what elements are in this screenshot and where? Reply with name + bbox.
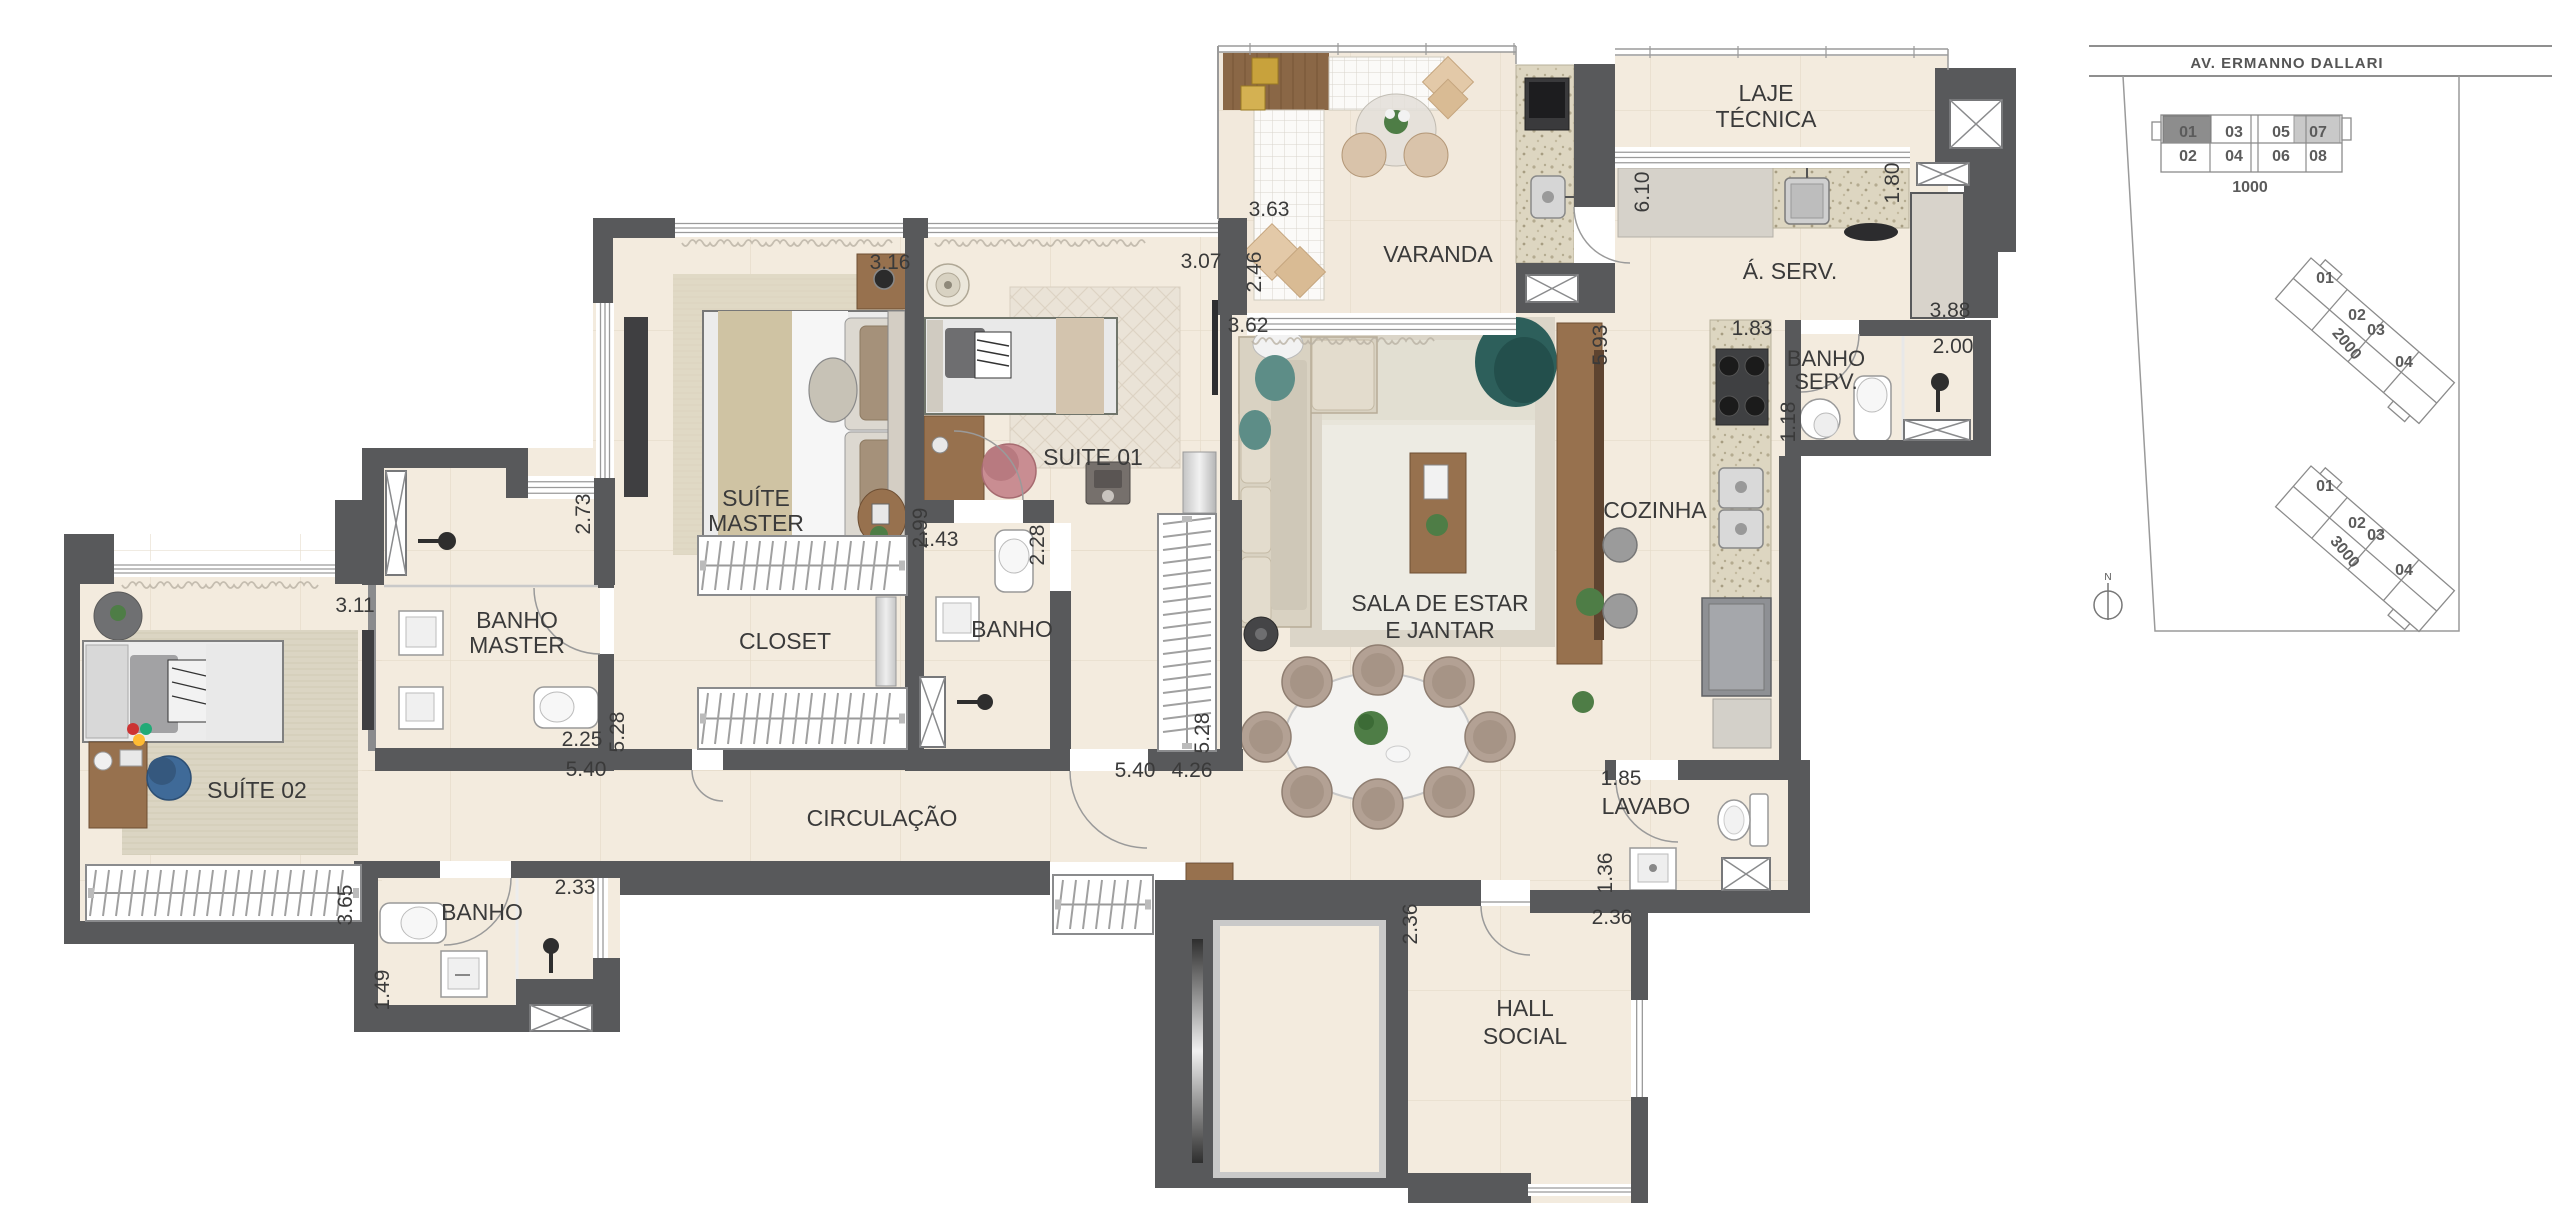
svg-text:MASTER: MASTER [469, 632, 565, 658]
svg-text:BANHO: BANHO [1787, 346, 1865, 371]
svg-text:2.36: 2.36 [1399, 904, 1422, 945]
svg-text:04: 04 [2225, 148, 2243, 165]
svg-text:3.16: 3.16 [870, 251, 911, 274]
svg-text:SUITE 01: SUITE 01 [1043, 444, 1143, 470]
svg-text:TÉCNICA: TÉCNICA [1716, 106, 1818, 132]
svg-text:4.26: 4.26 [1172, 759, 1213, 782]
svg-text:LAJE: LAJE [1739, 80, 1794, 106]
svg-text:HALL: HALL [1496, 995, 1554, 1021]
svg-text:LAVABO: LAVABO [1602, 793, 1691, 819]
svg-text:3.65: 3.65 [334, 885, 357, 926]
svg-text:3.62: 3.62 [1228, 314, 1269, 337]
svg-text:06: 06 [2272, 148, 2290, 165]
svg-text:2.00: 2.00 [1933, 335, 1974, 358]
svg-text:05: 05 [2272, 124, 2290, 141]
svg-text:N: N [2104, 572, 2111, 583]
svg-text:6.10: 6.10 [1631, 172, 1654, 213]
svg-text:2.28: 2.28 [1026, 525, 1049, 566]
svg-text:5.28: 5.28 [1191, 713, 1214, 754]
svg-text:07: 07 [2309, 124, 2327, 141]
svg-text:3.11: 3.11 [335, 594, 374, 617]
svg-text:Á. SERV.: Á. SERV. [1743, 258, 1838, 284]
svg-text:2.73: 2.73 [572, 494, 595, 535]
svg-text:SUÍTE 02: SUÍTE 02 [207, 777, 307, 803]
svg-text:01: 01 [2179, 124, 2197, 141]
svg-text:03: 03 [2367, 527, 2385, 544]
svg-text:BANHO: BANHO [971, 616, 1053, 642]
svg-text:CLOSET: CLOSET [739, 628, 831, 654]
svg-text:SUÍTE: SUÍTE [722, 485, 790, 511]
svg-text:SOCIAL: SOCIAL [1483, 1023, 1568, 1049]
svg-text:SALA DE ESTAR: SALA DE ESTAR [1351, 590, 1528, 616]
svg-text:5.93: 5.93 [1589, 325, 1612, 366]
svg-text:04: 04 [2395, 562, 2413, 579]
svg-text:2.46: 2.46 [1243, 252, 1266, 293]
svg-text:3.07: 3.07 [1181, 250, 1222, 273]
svg-text:AV. ERMANNO DALLARI: AV. ERMANNO DALLARI [2190, 55, 2383, 72]
svg-text:1.83: 1.83 [1732, 317, 1773, 340]
svg-text:3.88: 3.88 [1930, 299, 1971, 322]
svg-text:1000: 1000 [2232, 179, 2268, 196]
svg-text:2.33: 2.33 [555, 876, 596, 899]
svg-text:COZINHA: COZINHA [1603, 497, 1707, 523]
svg-text:5.40: 5.40 [1115, 759, 1156, 782]
svg-text:CIRCULAÇÃO: CIRCULAÇÃO [807, 805, 958, 831]
svg-text:MASTER: MASTER [708, 510, 804, 536]
svg-text:BANHO: BANHO [476, 607, 558, 633]
svg-text:5.28: 5.28 [606, 712, 629, 753]
svg-text:E JANTAR: E JANTAR [1385, 617, 1494, 643]
svg-text:1.36: 1.36 [1594, 853, 1617, 894]
svg-text:03: 03 [2367, 322, 2385, 339]
svg-text:1.80: 1.80 [1881, 163, 1904, 204]
svg-text:1.85: 1.85 [1601, 767, 1642, 790]
svg-text:BANHO: BANHO [441, 899, 523, 925]
svg-text:01: 01 [2316, 270, 2334, 287]
svg-text:03: 03 [2225, 124, 2243, 141]
svg-text:VARANDA: VARANDA [1383, 241, 1493, 267]
svg-text:5.40: 5.40 [566, 758, 607, 781]
svg-text:1.49: 1.49 [371, 970, 394, 1011]
svg-text:01: 01 [2316, 478, 2334, 495]
svg-text:02: 02 [2348, 307, 2366, 324]
svg-text:1.43: 1.43 [918, 528, 959, 551]
svg-text:1.18: 1.18 [1777, 402, 1800, 443]
svg-text:02: 02 [2348, 515, 2366, 532]
svg-text:2.25: 2.25 [562, 728, 603, 751]
svg-text:08: 08 [2309, 148, 2327, 165]
svg-text:SERV.: SERV. [1794, 369, 1858, 394]
svg-text:04: 04 [2395, 354, 2413, 371]
svg-text:02: 02 [2179, 148, 2197, 165]
svg-text:2.36: 2.36 [1592, 906, 1633, 929]
svg-text:3.63: 3.63 [1249, 198, 1290, 221]
